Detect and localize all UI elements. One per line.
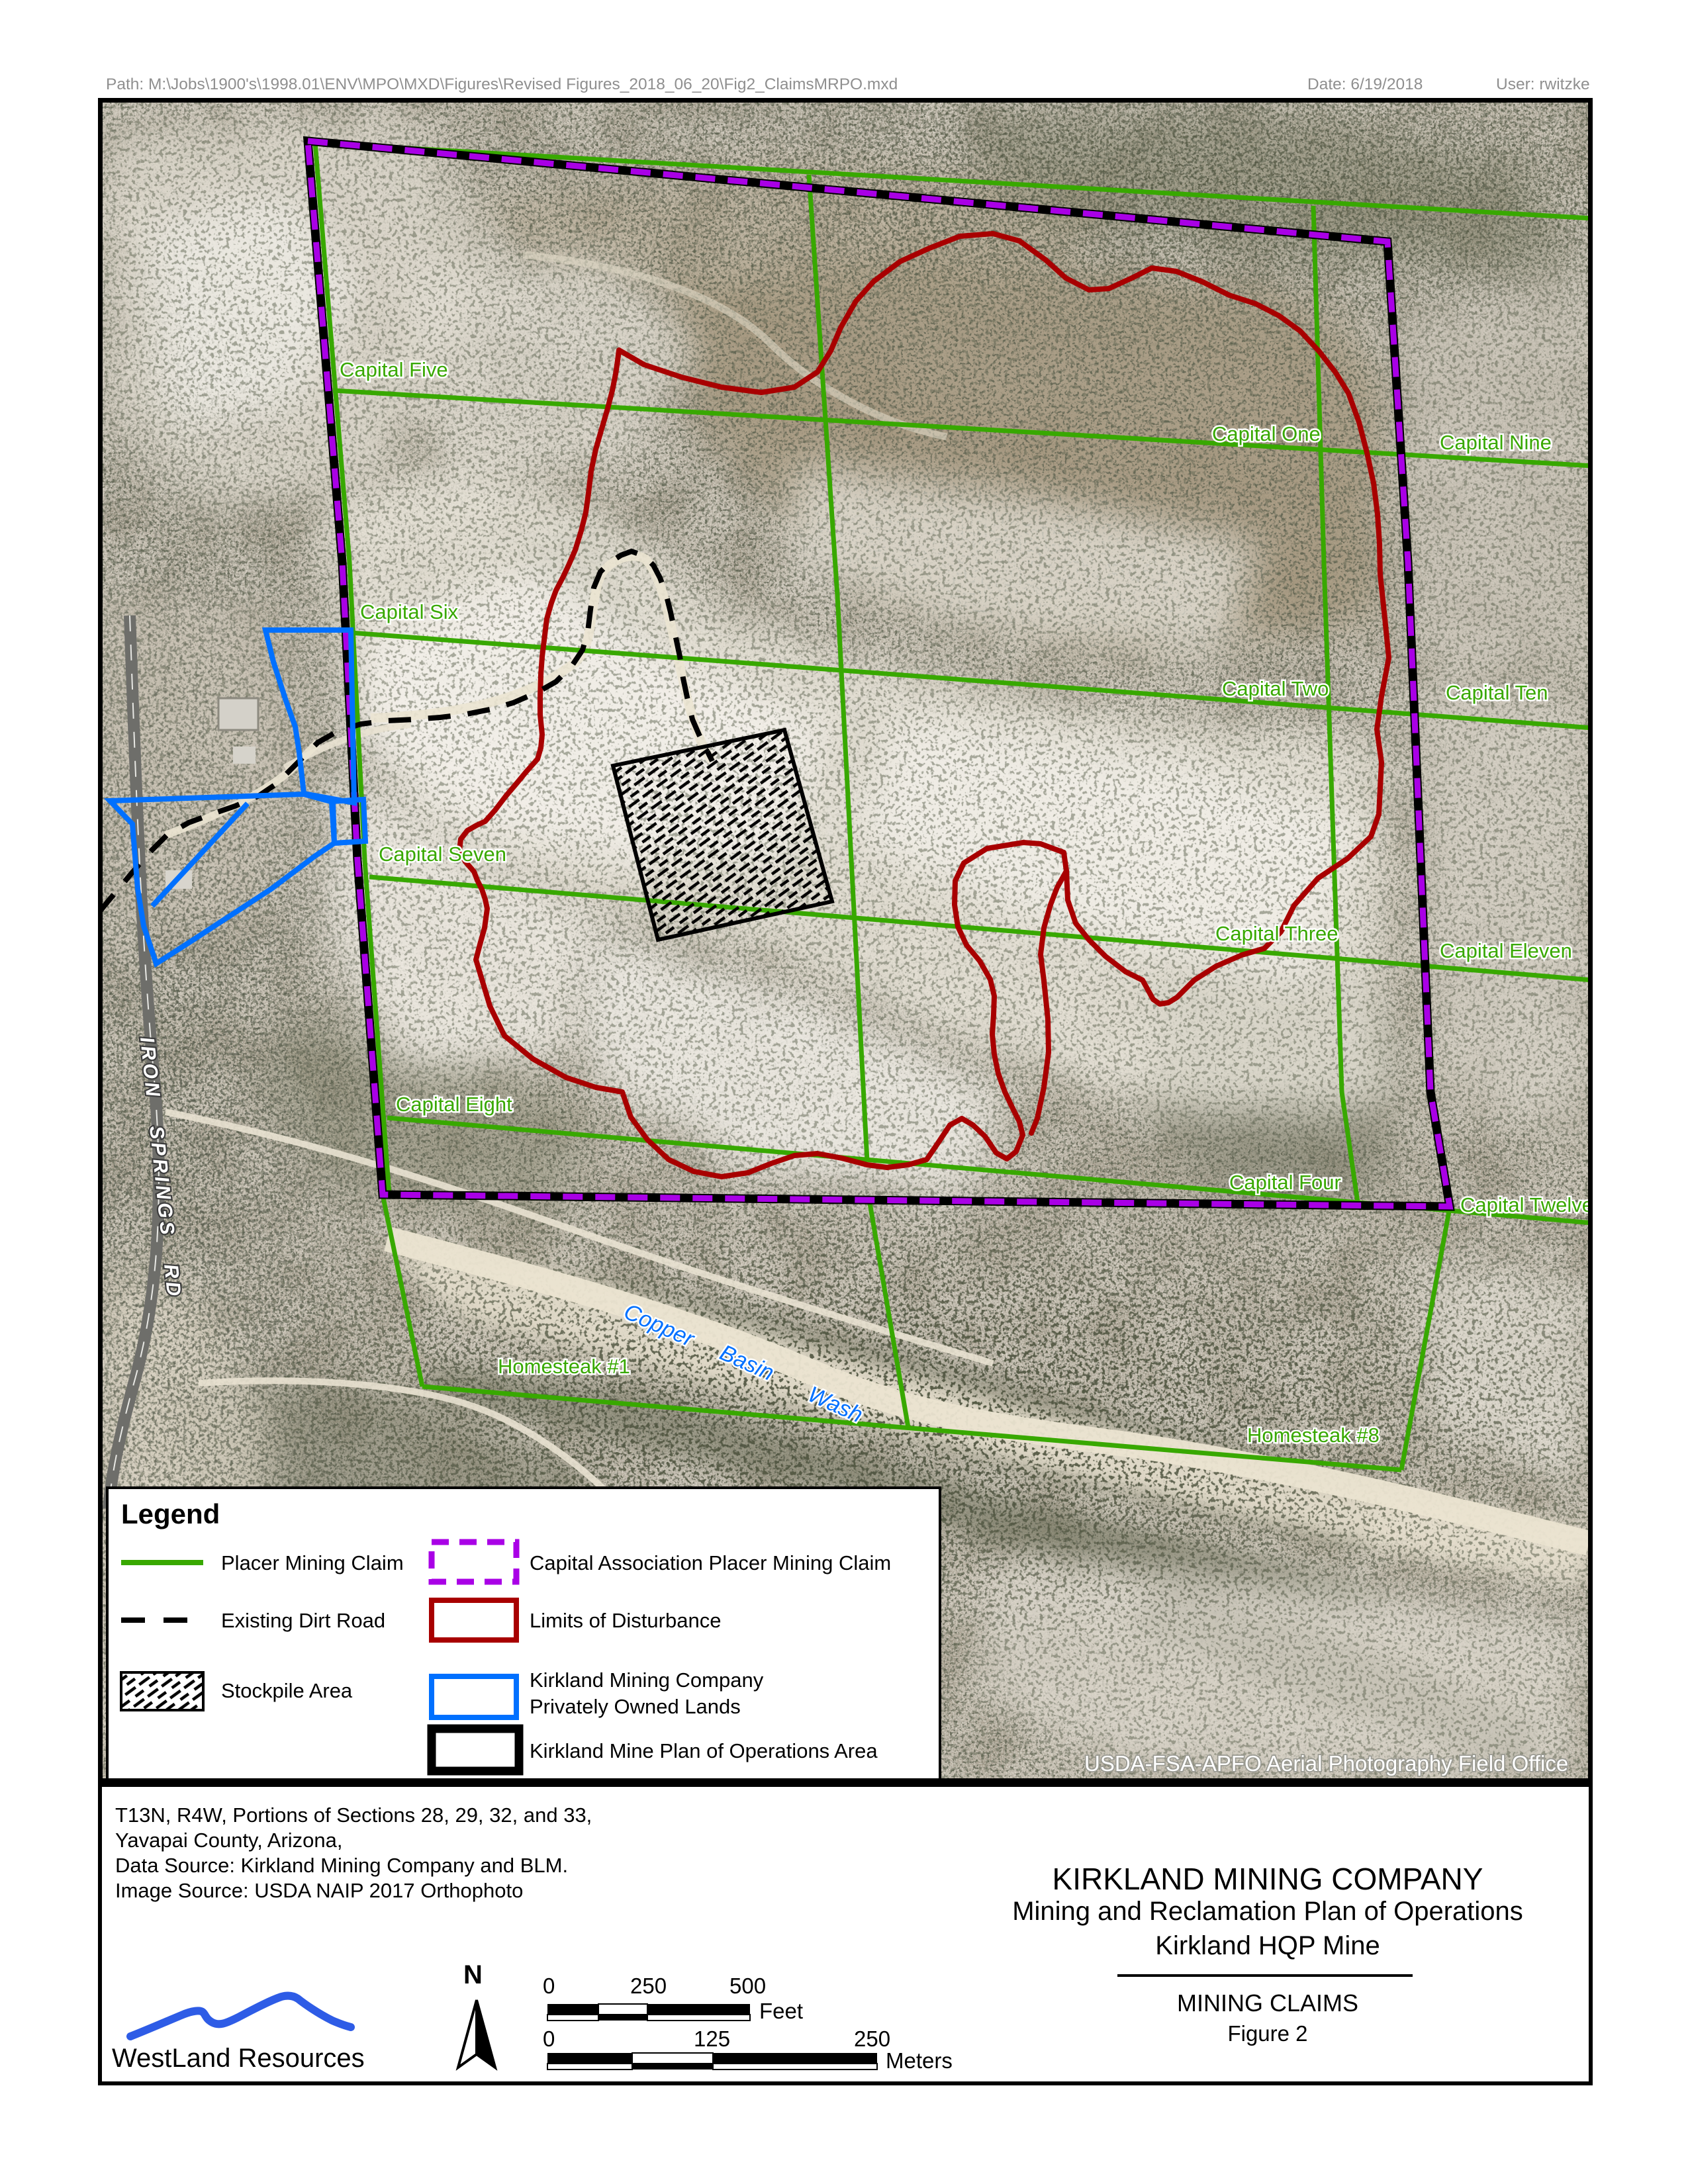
svg-text:Capital Eleven: Capital Eleven [1440, 939, 1572, 962]
svg-text:Capital Ten: Capital Ten [1446, 681, 1548, 704]
svg-text:Capital Three: Capital Three [1215, 922, 1338, 945]
svg-text:Homesteak #8: Homesteak #8 [1247, 1424, 1380, 1447]
svg-text:250: 250 [630, 1974, 667, 1998]
svg-text:Existing Dirt Road: Existing Dirt Road [221, 1609, 385, 1632]
svg-text:Capital Five: Capital Five [340, 358, 448, 381]
svg-text:Capital Seven: Capital Seven [379, 842, 506, 866]
svg-text:Stockpile Area: Stockpile Area [221, 1679, 353, 1702]
svg-text:Homesteak #1: Homesteak #1 [498, 1355, 630, 1378]
svg-text:Capital Eight: Capital Eight [396, 1093, 512, 1116]
svg-text:0: 0 [543, 1974, 555, 1998]
svg-text:Kirkland Mine Plan of Operatio: Kirkland Mine Plan of Operations Area [530, 1739, 878, 1762]
svg-text:Capital Four: Capital Four [1229, 1171, 1341, 1194]
svg-text:WestLand Resources: WestLand Resources [112, 2044, 365, 2073]
svg-text:Capital One: Capital One [1212, 422, 1321, 445]
svg-text:Capital Two: Capital Two [1222, 677, 1329, 700]
svg-text:0: 0 [543, 2026, 555, 2051]
svg-text:USDA-FSA-APFO Aerial Photograp: USDA-FSA-APFO Aerial Photography Field O… [1084, 1751, 1568, 1776]
svg-text:Privately Owned Lands: Privately Owned Lands [530, 1695, 741, 1718]
svg-text:Capital Six: Capital Six [360, 600, 459, 623]
svg-text:250: 250 [854, 2026, 890, 2051]
svg-text:Feet: Feet [759, 1999, 803, 2023]
svg-text:Legend: Legend [121, 1498, 220, 1529]
svg-text:500: 500 [729, 1974, 766, 1998]
svg-text:Kirkland Mining Company: Kirkland Mining Company [530, 1668, 764, 1692]
svg-text:125: 125 [694, 2026, 730, 2051]
svg-text:Capital Twelve: Capital Twelve [1460, 1193, 1593, 1216]
svg-text:Limits of Disturbance: Limits of Disturbance [530, 1609, 721, 1632]
svg-text:Placer Mining Claim: Placer Mining Claim [221, 1551, 404, 1574]
svg-text:Capital Association Placer Min: Capital Association Placer Mining Claim [530, 1551, 891, 1574]
svg-text:Capital Nine: Capital Nine [1440, 431, 1552, 454]
svg-text:Meters: Meters [886, 2048, 953, 2073]
